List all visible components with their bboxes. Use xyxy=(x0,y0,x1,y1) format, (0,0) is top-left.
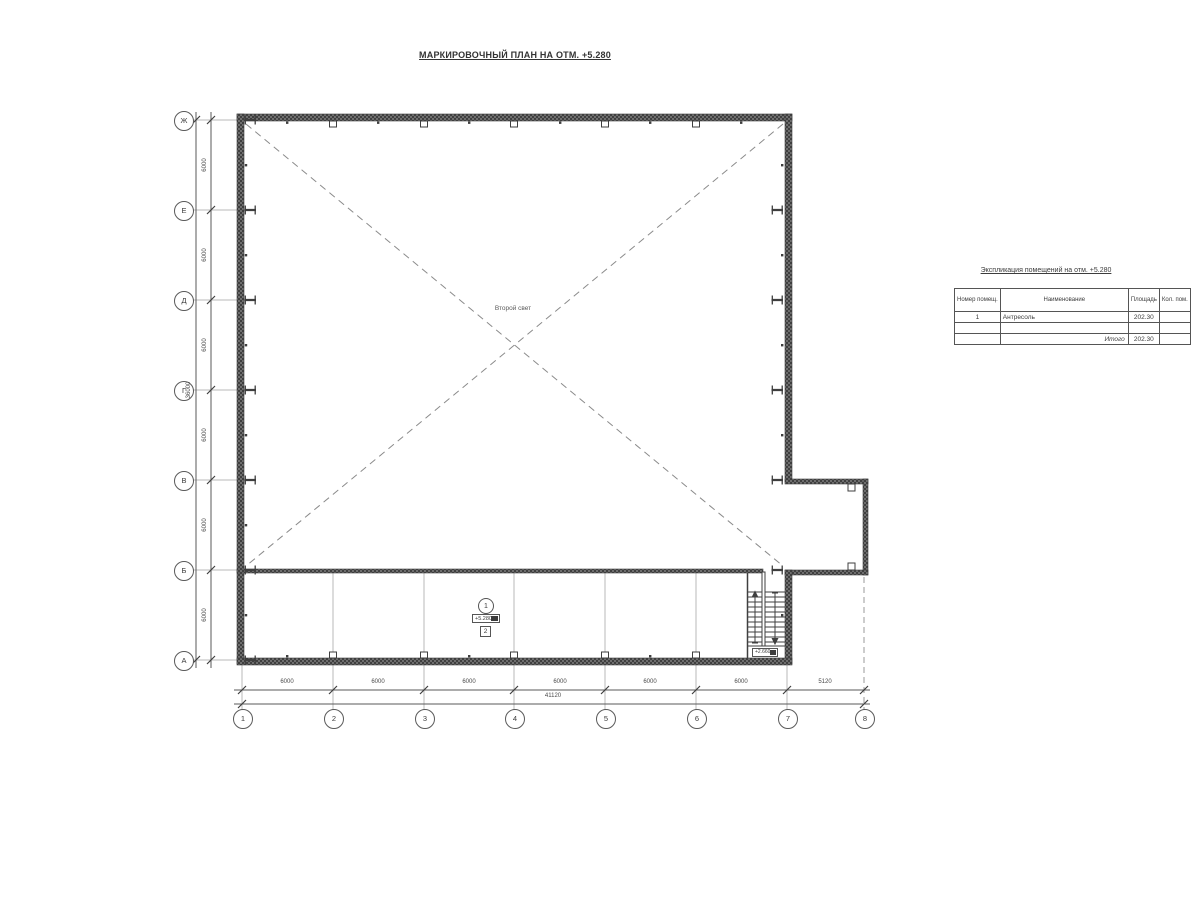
axis-col-label: 6 xyxy=(695,715,699,723)
cell-name xyxy=(1000,323,1128,334)
col-header-area: Площадь xyxy=(1128,289,1159,312)
cell-number: 1 xyxy=(955,312,1001,323)
wall-right-upper xyxy=(785,114,792,482)
dim-left-bay: 6000 xyxy=(202,315,210,375)
table-row xyxy=(955,323,1191,334)
dimension-lines xyxy=(196,112,870,704)
axis-row-bubble: Ж xyxy=(174,111,194,131)
cell-count xyxy=(1159,334,1190,345)
room-elevation-label: +5.280 xyxy=(475,616,492,622)
dimension-ticks xyxy=(192,116,868,708)
axis-row-label: А xyxy=(181,657,186,665)
dim-bottom-bay: 6000 xyxy=(530,679,590,685)
axis-row-label: Ж xyxy=(181,117,188,125)
col-header-number: Номер помещ. xyxy=(955,289,1001,312)
room-type-label: 2 xyxy=(484,628,488,635)
dim-bottom-bay: 5120 xyxy=(795,679,855,685)
axis-col-label: 7 xyxy=(786,715,790,723)
stair xyxy=(748,572,786,658)
wall-right-lower xyxy=(785,570,792,664)
dim-left-bay: 6000 xyxy=(202,405,210,465)
axis-col-bubble: 2 xyxy=(324,709,344,729)
axis-col-label: 4 xyxy=(513,715,517,723)
wall-bottom xyxy=(237,658,792,665)
wall-axis-b xyxy=(237,569,763,573)
wall-bumpout-bottom xyxy=(785,570,868,575)
stair-elevation-label: +2.660 xyxy=(755,649,770,655)
drawing-title: МАРКИРОВОЧНЫЙ ПЛАН НА ОТМ. +5.280 xyxy=(315,50,715,60)
axis-col-bubble: 1 xyxy=(233,709,253,729)
dim-left-bay: 6000 xyxy=(202,135,210,195)
second-light-label: Второй свет xyxy=(463,305,563,312)
axis-col-bubble: 8 xyxy=(855,709,875,729)
table-row: 1 Антресоль 202.30 xyxy=(955,312,1191,323)
axis-row-label: Д xyxy=(181,297,186,305)
elevation-fill-block xyxy=(770,650,776,655)
axis-row-bubble: Б xyxy=(174,561,194,581)
dim-bottom-bay: 6000 xyxy=(439,679,499,685)
axis-row-bubble: А xyxy=(174,651,194,671)
axis-row-label: Е xyxy=(181,207,186,215)
axis-col-label: 3 xyxy=(423,715,427,723)
stair-elevation-marker: +2.660 xyxy=(752,648,778,657)
axis-col-label: 1 xyxy=(241,715,245,723)
explication-title: Экспликация помещений на отм. +5.280 xyxy=(954,267,1138,274)
dim-left-total: 36000 xyxy=(186,360,194,420)
floor-plan-canvas xyxy=(0,0,1200,900)
axis-row-bubble: В xyxy=(174,471,194,491)
wall-top xyxy=(237,114,792,121)
cell-area: 202.30 xyxy=(1128,312,1159,323)
cad-drawing-page: МАРКИРОВОЧНЫЙ ПЛАН НА ОТМ. +5.280 Ж Е Д … xyxy=(0,0,1200,900)
stair-arrow-up-line xyxy=(752,596,758,643)
dim-bottom-bay: 6000 xyxy=(711,679,771,685)
void-diagonal-lines xyxy=(246,124,783,566)
axis-col-bubble: 3 xyxy=(415,709,435,729)
explication-table: Номер помещ. Наименование Площадь Кол. п… xyxy=(954,288,1191,345)
axis-row-label: В xyxy=(181,477,186,485)
axis-row-bubble: Е xyxy=(174,201,194,221)
dim-bottom-total: 41120 xyxy=(523,693,583,699)
axis-col-bubble: 6 xyxy=(687,709,707,729)
elevation-fill-block xyxy=(491,616,498,621)
table-row-total: Итого 202.30 xyxy=(955,334,1191,345)
cell-count xyxy=(1159,323,1190,334)
wall-left xyxy=(237,114,244,664)
col-header-name: Наименование xyxy=(1000,289,1128,312)
table-header-row: Номер помещ. Наименование Площадь Кол. п… xyxy=(955,289,1191,312)
axis-row-bubble: Д xyxy=(174,291,194,311)
dim-bottom-bay: 6000 xyxy=(620,679,680,685)
axis-col-label: 8 xyxy=(863,715,867,723)
dim-bottom-bay: 6000 xyxy=(257,679,317,685)
cell-number xyxy=(955,323,1001,334)
axis-col-label: 5 xyxy=(604,715,608,723)
cell-number xyxy=(955,334,1001,345)
room-number-label: 1 xyxy=(484,603,488,610)
dim-left-bay: 6000 xyxy=(202,225,210,285)
axis-col-bubble: 5 xyxy=(596,709,616,729)
axis-col-bubble: 4 xyxy=(505,709,525,729)
cell-name: Антресоль xyxy=(1000,312,1128,323)
wall-bumpout-right xyxy=(863,479,868,575)
col-header-count: Кол. пом. xyxy=(1159,289,1190,312)
axis-col-bubble: 7 xyxy=(778,709,798,729)
room-elevation-marker: +5.280 xyxy=(472,614,500,623)
dim-bottom-bay: 6000 xyxy=(348,679,408,685)
dim-left-bay: 6000 xyxy=(202,495,210,555)
axis-row-label: Б xyxy=(182,567,187,575)
room-type-marker: 2 xyxy=(480,626,491,637)
cell-total-label: Итого xyxy=(1000,334,1128,345)
dim-left-bay: 6000 xyxy=(202,585,210,645)
stair-arrow-down-icon xyxy=(772,639,777,645)
room-number-bubble: 1 xyxy=(478,598,494,614)
cell-count xyxy=(1159,312,1190,323)
cell-area xyxy=(1128,323,1159,334)
wall-bumpout-top xyxy=(785,479,868,484)
cell-total-area: 202.30 xyxy=(1128,334,1159,345)
axis-col-label: 2 xyxy=(332,715,336,723)
